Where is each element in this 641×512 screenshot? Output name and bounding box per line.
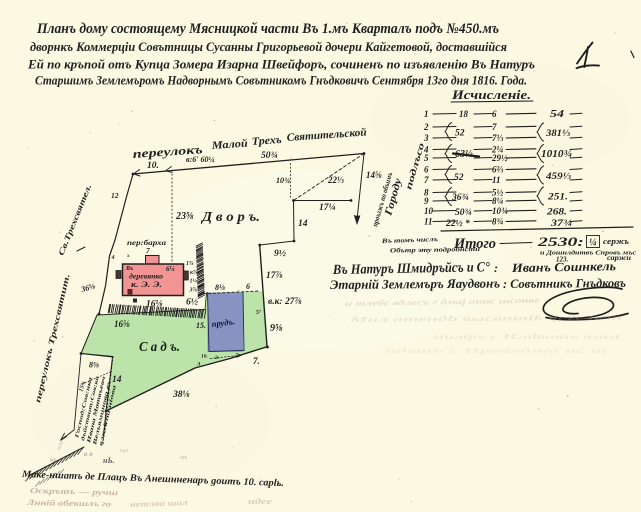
svg-text:х: х <box>126 254 130 259</box>
svg-text:50¾: 50¾ <box>261 150 278 161</box>
svg-text:1⅞: 1⅞ <box>186 261 194 267</box>
svg-text:7: 7 <box>146 246 150 255</box>
svg-text:9⅝: 9⅝ <box>270 323 283 334</box>
svg-text:11: 11 <box>492 175 501 185</box>
svg-text:Трехъ: Трехъ <box>251 134 282 148</box>
svg-text:29½: 29½ <box>491 153 508 163</box>
svg-text:10.: 10. <box>147 161 159 171</box>
svg-text:Планъ дому состоящему Мясницко: Планъ дому состоящему Мясницкой части Въ… <box>36 21 499 37</box>
svg-text:6: 6 <box>424 165 429 175</box>
svg-text:6⅔: 6⅔ <box>492 165 504 175</box>
svg-text:6: 6 <box>492 109 497 119</box>
svg-text:5: 5 <box>424 153 429 163</box>
svg-text:16⅛: 16⅛ <box>146 300 163 310</box>
svg-text:Λ: Λ <box>196 362 201 368</box>
svg-text:3: 3 <box>423 133 429 143</box>
svg-text:сержь: сержь <box>603 237 629 246</box>
svg-text:Иванъ Сошнкель: Иванъ Сошнкель <box>511 259 617 275</box>
svg-text:52: 52 <box>454 173 464 183</box>
svg-text::: : <box>494 261 498 275</box>
svg-text:1010¾: 1010¾ <box>541 149 573 160</box>
svg-text:идее: идее <box>248 497 273 506</box>
svg-text:16⅝: 16⅝ <box>114 319 130 329</box>
svg-text:Лннiй обекшлъ го: Лннiй обекшлъ го <box>26 498 111 508</box>
svg-text:¼: ¼ <box>589 238 597 249</box>
svg-text:16.: 16. <box>201 354 208 360</box>
svg-text:к⅞: к⅞ <box>190 270 198 276</box>
svg-text:54: 54 <box>550 109 564 120</box>
svg-text:идетъ с Провлднiо пс т: идетъ с Провлднiо пс т <box>385 347 609 355</box>
svg-text:нЬ.: нЬ. <box>103 456 115 465</box>
svg-text:52: 52 <box>455 129 465 139</box>
svg-text:37¾: 37¾ <box>550 218 572 229</box>
svg-text:17⅞: 17⅞ <box>266 271 283 281</box>
svg-text:14: 14 <box>112 375 122 385</box>
svg-text:7: 7 <box>424 175 429 185</box>
svg-text:1¼: 1¼ <box>190 279 198 285</box>
svg-text:милiръ с Нгаlвшпъ чsаst: милiръ с Нгаlвшпъ чsаst <box>429 333 622 341</box>
svg-text:7: 7 <box>492 122 497 132</box>
svg-text:381⅓: 381⅓ <box>545 129 571 139</box>
svg-text:36¾: 36¾ <box>451 192 469 203</box>
svg-text:10¾: 10¾ <box>276 176 290 185</box>
svg-text:к. Э. Э.: к. Э. Э. <box>131 280 162 289</box>
svg-text:23⅝: 23⅝ <box>175 211 194 222</box>
svg-text:Ей по кръпой отъ Купца Зомера: Ей по кръпой отъ Купца Зомера Изарна Шве… <box>27 58 535 72</box>
svg-text:8¼: 8¼ <box>492 196 504 206</box>
svg-text:Исчисленiе.: Исчисленiе. <box>451 87 531 102</box>
svg-text:7.: 7. <box>253 356 260 366</box>
svg-text:: Совътникъ Гнъдковъ: : Совътникъ Гнъдковъ <box>503 276 627 291</box>
svg-text:459⅓: 459⅓ <box>545 172 572 182</box>
svg-text:8⅛: 8⅛ <box>215 283 225 292</box>
svg-text:22⅓: 22⅓ <box>327 175 344 185</box>
svg-text:1: 1 <box>424 109 429 119</box>
svg-text:7⅓: 7⅓ <box>492 133 504 143</box>
svg-text:8¾: 8¾ <box>492 217 504 227</box>
svg-text:6½: 6½ <box>186 298 198 308</box>
svg-text:14: 14 <box>298 219 308 229</box>
svg-text:22½ *: 22½ * <box>445 218 470 229</box>
svg-text:о о: о о <box>84 450 93 458</box>
svg-text:6: 6 <box>246 282 250 291</box>
svg-text:Старшимъ Землемъромъ Надворным: Старшимъ Землемъромъ Надворнымъ Совътник… <box>35 74 527 88</box>
svg-text:3⅞: 3⅞ <box>189 288 198 294</box>
svg-text:Итого: Итого <box>453 236 496 252</box>
svg-text:мъ: мъ <box>179 455 187 461</box>
svg-text:дворнкъ Коммерцiи Совътницы Су: дворнкъ Коммерцiи Совътницы Сусанны Григ… <box>30 39 507 54</box>
svg-text:38⅛: 38⅛ <box>172 390 190 400</box>
svg-text:10¾: 10¾ <box>492 206 508 216</box>
svg-text:251.: 251. <box>547 193 568 203</box>
svg-text:18: 18 <box>459 109 469 119</box>
svg-text:Въ: Въ <box>125 266 133 272</box>
svg-text:6¼: 6¼ <box>166 265 175 273</box>
svg-text:Д в о р ъ.: Д в о р ъ. <box>200 209 260 224</box>
svg-text:9½: 9½ <box>274 249 286 259</box>
svg-text:10: 10 <box>424 206 434 216</box>
svg-text:в.к: 27⅞: в.к: 27⅞ <box>268 297 302 307</box>
svg-text:2: 2 <box>423 122 429 132</box>
svg-text:50¾: 50¾ <box>455 207 472 218</box>
svg-text:щл: щл <box>120 448 128 454</box>
svg-text:4: 4 <box>111 255 115 261</box>
svg-text:15.: 15. <box>196 321 206 330</box>
svg-text:С а д ъ.: С а д ъ. <box>139 339 180 354</box>
svg-text:17¼: 17¼ <box>319 202 336 213</box>
svg-text:268.: 268. <box>546 208 567 218</box>
svg-text:9: 9 <box>424 196 429 206</box>
svg-text:8⅝: 8⅝ <box>89 361 99 370</box>
svg-text:Этарнiй Землемъръ Яаудвонъ: Этарнiй Землемъръ Яаудвонъ <box>330 276 500 292</box>
svg-text:14⅝: 14⅝ <box>366 170 382 180</box>
svg-text:2530:: 2530: <box>536 234 584 249</box>
svg-text:11: 11 <box>424 217 433 227</box>
svg-text:12: 12 <box>111 191 119 200</box>
